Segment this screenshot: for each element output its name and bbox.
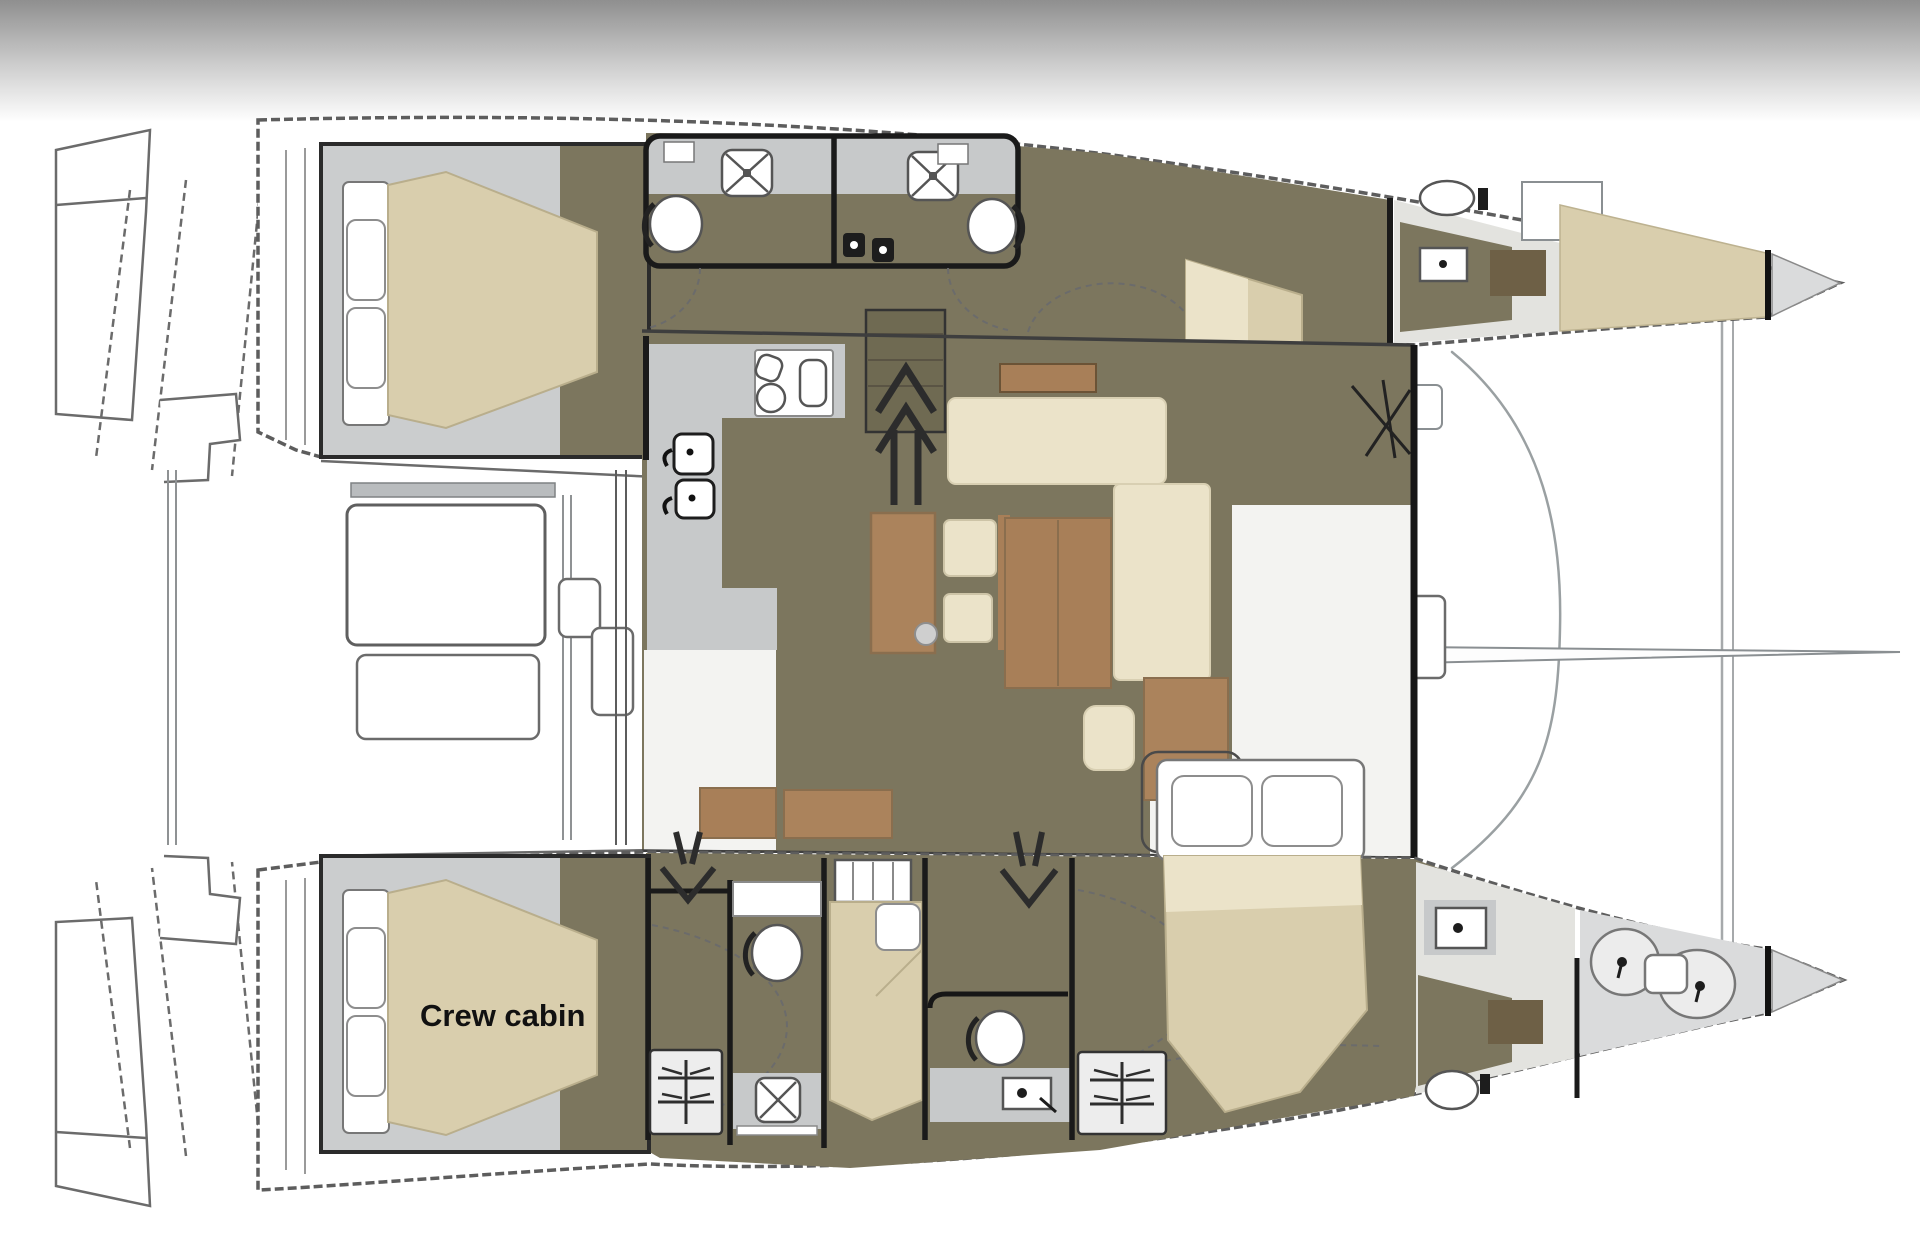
toilet-icon <box>1420 181 1474 215</box>
sink-icon <box>1003 1078 1051 1109</box>
vanity-counter <box>733 882 821 916</box>
pillow <box>347 220 385 300</box>
pillow <box>347 308 385 388</box>
shower-icon <box>756 1078 800 1122</box>
toilet-icon <box>1426 1071 1478 1109</box>
cockpit-side-seat <box>559 579 600 637</box>
counter-sink <box>938 144 968 164</box>
heads-port <box>644 136 1022 266</box>
bed-blanket <box>1164 856 1362 912</box>
sofa-seat <box>948 398 1166 484</box>
spacer <box>942 820 992 853</box>
shower-icon <box>722 150 772 196</box>
cockpit-table <box>347 505 545 645</box>
yacht-floorplan-screenshot: Crew cabin <box>0 0 1920 1259</box>
faucet-icon <box>1478 188 1488 210</box>
dinette-seat <box>944 520 996 576</box>
pillow <box>347 928 385 1008</box>
toilet-icon <box>968 199 1023 253</box>
top-gradient-bar <box>0 0 1920 122</box>
pillow <box>876 904 920 950</box>
yacht-floor-plan: Crew cabin <box>0 0 1920 1259</box>
counter-sink <box>664 142 694 162</box>
cockpit-bench <box>357 655 539 739</box>
crew-cabin: Crew cabin <box>321 856 649 1152</box>
pillow <box>1262 776 1342 846</box>
cockpit-aft-bench-back <box>351 483 555 497</box>
rug <box>1488 1000 1543 1044</box>
aft-cabin-port <box>321 144 649 457</box>
dinette-seat <box>944 594 992 642</box>
toilet-icon <box>644 196 702 252</box>
faucet-icon <box>1480 1074 1490 1094</box>
pillow <box>1172 776 1252 846</box>
table-leg <box>915 623 937 645</box>
crew-cabin-label: Crew cabin <box>420 998 585 1033</box>
ottoman <box>1084 706 1134 770</box>
rug <box>1490 250 1546 296</box>
pillow <box>347 1016 385 1096</box>
stove-icon <box>754 350 833 416</box>
vent-grille-icon <box>650 1050 722 1134</box>
mid-cabin-stbd <box>830 858 925 1140</box>
aft-cabinet <box>784 790 892 838</box>
cabinet <box>1000 364 1096 392</box>
aft-cabinet <box>700 788 776 838</box>
toilet-icon <box>745 925 802 981</box>
vent-grille-icon <box>1078 1052 1166 1134</box>
sofa-seat <box>1114 484 1210 680</box>
